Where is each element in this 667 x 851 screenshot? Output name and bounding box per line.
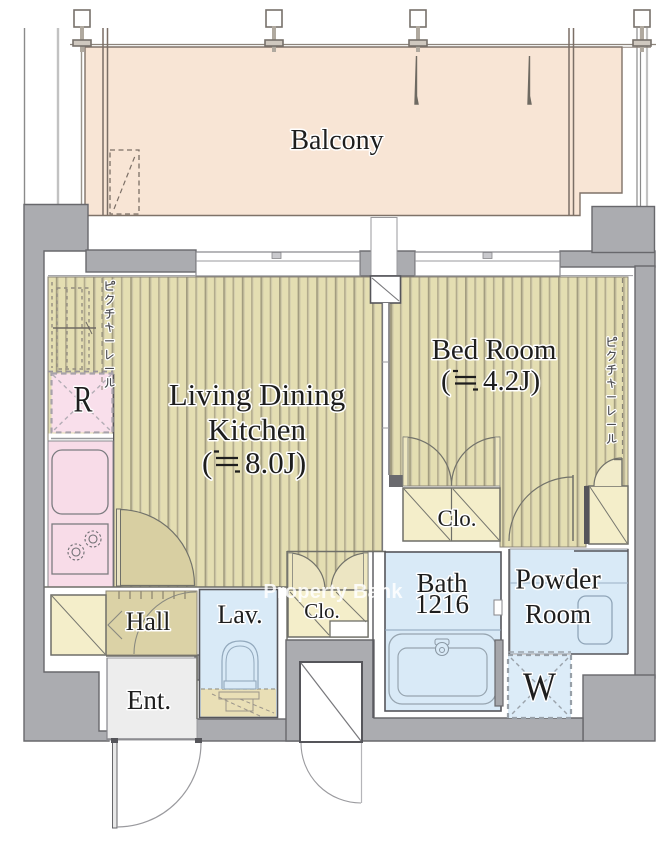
svg-text:W: W [523, 664, 556, 709]
svg-text:(: ( [202, 445, 212, 480]
svg-text:Room: Room [525, 599, 591, 629]
svg-text:Living Dining: Living Dining [169, 377, 346, 412]
svg-text:R: R [74, 380, 93, 421]
svg-text:(: ( [441, 365, 451, 397]
svg-text:Bed Room: Bed Room [432, 334, 557, 366]
svg-text:4.2J): 4.2J) [483, 365, 540, 397]
svg-text:Hall: Hall [126, 607, 171, 636]
svg-text:Kitchen: Kitchen [208, 412, 307, 447]
svg-text:8.0J): 8.0J) [245, 445, 306, 480]
svg-text:Balcony: Balcony [290, 125, 383, 156]
svg-text:Lav.: Lav. [217, 600, 262, 629]
svg-text:Powder: Powder [515, 565, 601, 596]
svg-text:Ent.: Ent. [127, 685, 171, 715]
svg-text:Property Bank: Property Bank [263, 581, 403, 603]
svg-text:1216: 1216 [415, 589, 469, 619]
svg-text:Clo.: Clo. [438, 506, 477, 531]
